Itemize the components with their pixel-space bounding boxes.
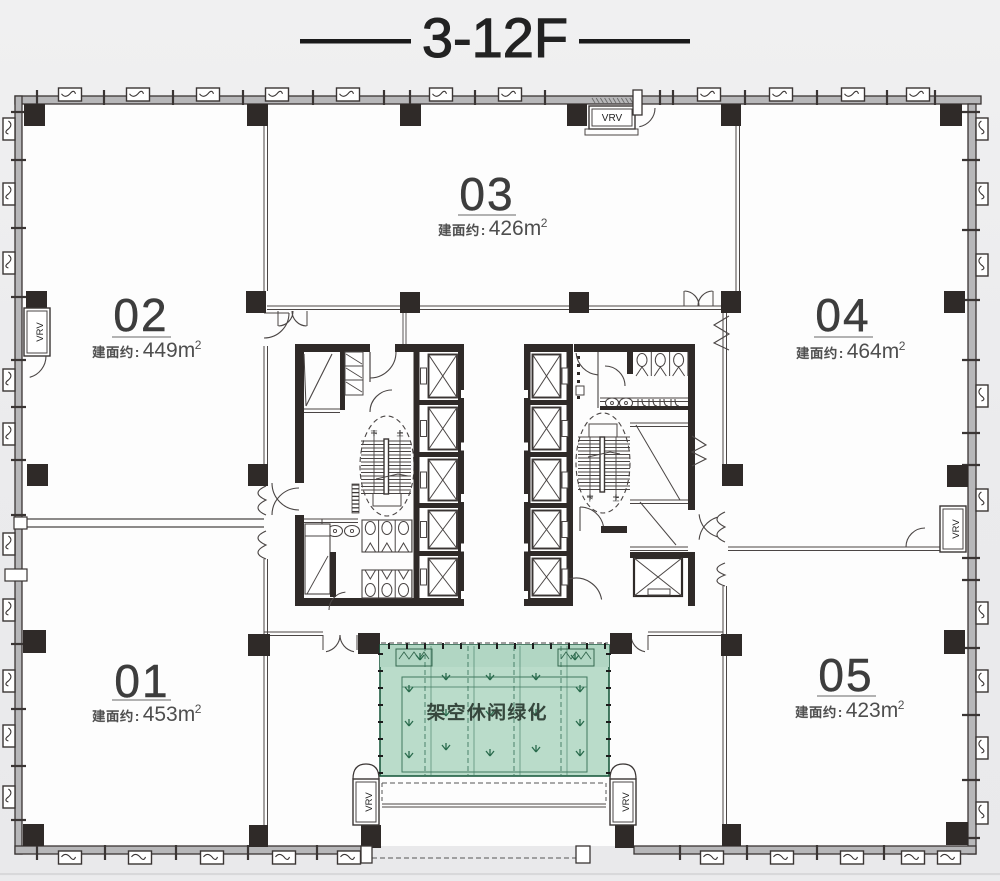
svg-text::: : (481, 222, 486, 238)
svg-text:02: 02 (113, 289, 168, 341)
svg-text::: : (135, 344, 140, 360)
svg-text:03: 03 (459, 168, 514, 220)
svg-text:04: 04 (815, 289, 870, 341)
svg-text:VRV: VRV (35, 322, 46, 342)
svg-text:453m: 453m (143, 703, 196, 726)
svg-text:01: 01 (114, 655, 169, 707)
svg-text:VRV: VRV (951, 519, 962, 539)
svg-text:2: 2 (898, 698, 905, 712)
svg-text::: : (839, 345, 844, 361)
svg-text:VRV: VRV (364, 792, 375, 812)
svg-text:VRV: VRV (621, 792, 632, 812)
svg-text:423m: 423m (846, 699, 899, 722)
svg-text:449m: 449m (143, 339, 196, 362)
svg-text:464m: 464m (847, 340, 900, 363)
svg-text:3-12F: 3-12F (422, 6, 568, 69)
svg-text::: : (135, 708, 140, 724)
svg-text:2: 2 (899, 339, 906, 353)
svg-text::: : (838, 704, 843, 720)
svg-text:426m: 426m (489, 217, 542, 240)
svg-text:2: 2 (195, 702, 202, 716)
svg-text:VRV: VRV (602, 113, 623, 124)
svg-text:2: 2 (541, 216, 548, 230)
svg-text:2: 2 (195, 338, 202, 352)
svg-text:05: 05 (818, 649, 873, 701)
